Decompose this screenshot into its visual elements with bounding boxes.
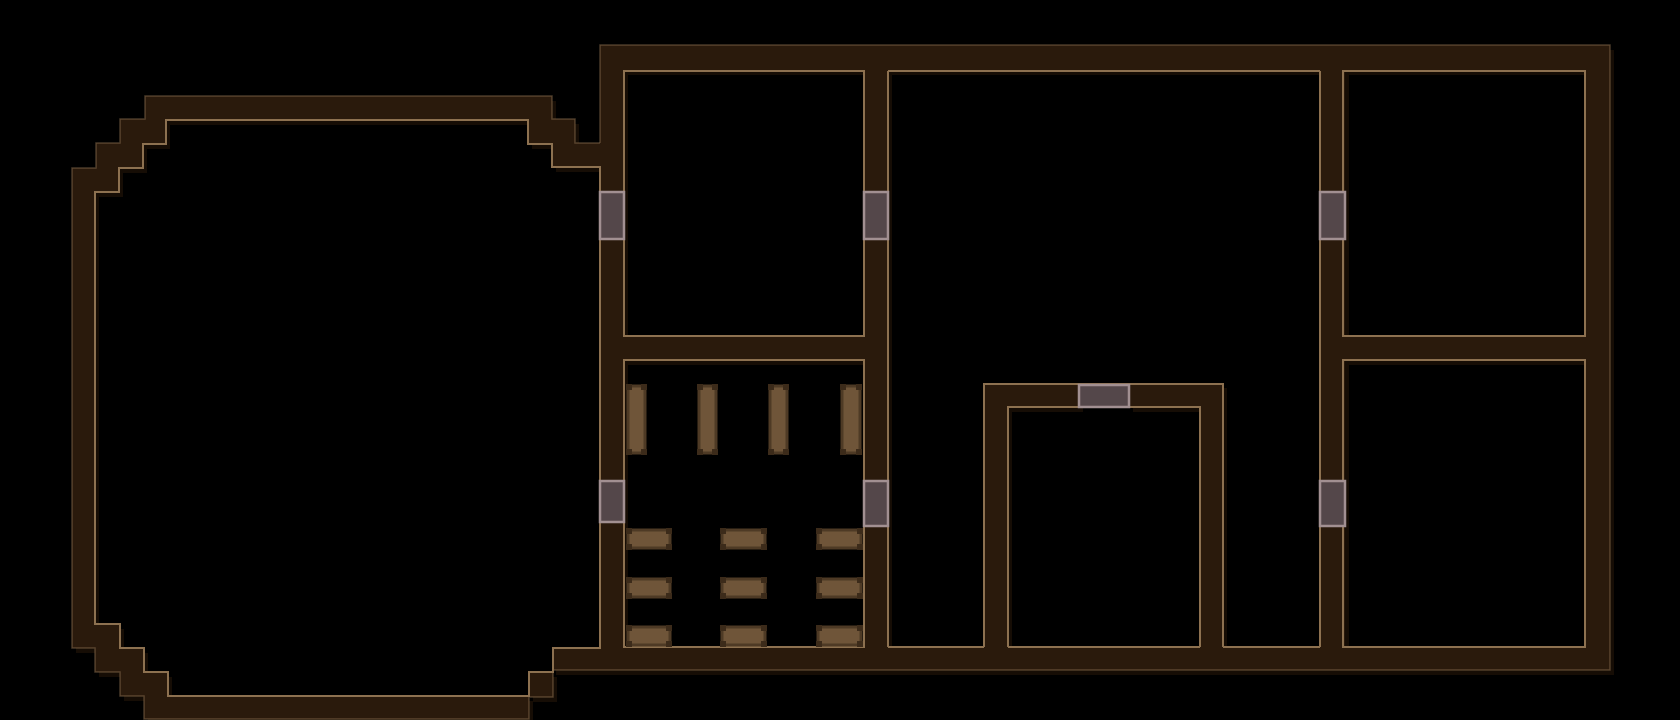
bench-vertical-3-cap-2 — [783, 384, 789, 390]
door-wall-a-south[interactable] — [864, 481, 888, 526]
bench-row2-col3[interactable] — [816, 577, 863, 599]
bench-row3-col3-seat[interactable] — [818, 627, 861, 645]
bench-vertical-3-cap-1 — [768, 384, 774, 390]
bench-vertical-2-cap-3 — [697, 449, 703, 455]
bench-vertical-2-cap-2 — [712, 384, 718, 390]
small-room-wall-north-right — [1129, 383, 1223, 407]
bench-row3-col1-cap-3 — [626, 641, 632, 647]
bench-row3-col3-cap-2 — [857, 625, 863, 631]
bench-row2-col2[interactable] — [720, 577, 767, 599]
bench-row2-col2-cap-2 — [761, 577, 767, 583]
bench-row2-col1[interactable] — [626, 577, 672, 599]
bench-vertical-3-cap-3 — [768, 449, 774, 455]
wall-vertical-a — [864, 70, 888, 648]
bench-row3-col1[interactable] — [626, 625, 672, 647]
bench-vertical-4-seat[interactable] — [842, 386, 860, 453]
bench-row1-col3[interactable] — [816, 528, 863, 550]
door-west-wall-north[interactable] — [600, 192, 624, 239]
bench-row1-col1[interactable] — [626, 528, 672, 550]
bench-row1-col2[interactable] — [720, 528, 767, 550]
bench-vertical-4-cap-2 — [856, 384, 862, 390]
bench-row1-col1-seat[interactable] — [628, 530, 670, 548]
bench-row3-col3-cap-4 — [857, 641, 863, 647]
bench-row1-col1-cap-3 — [626, 544, 632, 550]
small-room-wall-west — [984, 383, 1008, 648]
bench-row2-col1-cap-3 — [626, 593, 632, 599]
bench-vertical-3-seat[interactable] — [770, 386, 787, 453]
bench-vertical-1-seat[interactable] — [628, 386, 645, 453]
door-wall-b-north[interactable] — [1320, 192, 1345, 239]
bench-row2-col3-cap-1 — [816, 577, 822, 583]
bench-row1-col2-cap-2 — [761, 528, 767, 534]
bench-row3-col2-seat[interactable] — [722, 627, 765, 645]
bench-row2-col1-cap-4 — [666, 593, 672, 599]
bench-row1-col2-seat[interactable] — [722, 530, 765, 548]
wall-south — [552, 648, 1610, 670]
bench-vertical-2[interactable] — [697, 384, 718, 455]
bench-row3-col1-cap-1 — [626, 625, 632, 631]
wall-east — [1585, 45, 1610, 670]
bench-row2-col3-cap-4 — [857, 593, 863, 599]
bench-row1-col1-cap-1 — [626, 528, 632, 534]
wall-divider-east — [1343, 337, 1585, 360]
bench-vertical-4-cap-4 — [856, 449, 862, 455]
bench-row2-col2-seat[interactable] — [722, 579, 765, 597]
bench-row3-col3-cap-3 — [816, 641, 822, 647]
bench-vertical-4[interactable] — [840, 384, 862, 455]
bench-row3-col2-cap-1 — [720, 625, 726, 631]
bench-vertical-3-cap-4 — [783, 449, 789, 455]
bench-vertical-1-cap-1 — [626, 384, 632, 390]
bench-row2-col1-cap-1 — [626, 577, 632, 583]
bench-row1-col2-cap-3 — [720, 544, 726, 550]
bench-row2-col2-cap-1 — [720, 577, 726, 583]
bench-vertical-1-cap-2 — [641, 384, 647, 390]
bench-row2-col1-seat[interactable] — [628, 579, 670, 597]
bench-row2-col2-cap-4 — [761, 593, 767, 599]
bench-row1-col3-seat[interactable] — [818, 530, 861, 548]
bench-row2-col3-cap-3 — [816, 593, 822, 599]
bench-row1-col1-cap-2 — [666, 528, 672, 534]
bench-row2-col3-seat[interactable] — [818, 579, 861, 597]
bench-vertical-2-cap-4 — [712, 449, 718, 455]
bench-row3-col2-cap-3 — [720, 641, 726, 647]
bench-row3-col2-cap-2 — [761, 625, 767, 631]
door-wall-a-north[interactable] — [864, 192, 888, 239]
bench-row3-col2[interactable] — [720, 625, 767, 647]
bench-row1-col2-cap-4 — [761, 544, 767, 550]
bench-row3-col1-cap-2 — [666, 625, 672, 631]
bench-vertical-1-cap-4 — [641, 449, 647, 455]
door-west-wall-south[interactable] — [600, 481, 624, 522]
wall-north — [600, 45, 1610, 70]
bench-row3-col1-seat[interactable] — [628, 627, 670, 645]
bench-vertical-2-cap-1 — [697, 384, 703, 390]
door-wall-b-south[interactable] — [1320, 481, 1345, 526]
bench-row3-col3-cap-1 — [816, 625, 822, 631]
small-room-wall-east — [1200, 383, 1223, 648]
bench-row3-col2-cap-4 — [761, 641, 767, 647]
bench-vertical-4-cap-3 — [840, 449, 846, 455]
bench-row1-col3-cap-3 — [816, 544, 822, 550]
bench-vertical-3[interactable] — [768, 384, 789, 455]
floor-plan-stage — [0, 0, 1680, 720]
door-small-room-north[interactable] — [1079, 385, 1129, 407]
wall-vertical-b — [1320, 70, 1345, 648]
bench-row2-col1-cap-2 — [666, 577, 672, 583]
bench-row1-col1-cap-4 — [666, 544, 672, 550]
bench-vertical-1[interactable] — [626, 384, 647, 455]
wall-divider-west — [600, 337, 864, 360]
bench-vertical-2-seat[interactable] — [699, 386, 716, 453]
bench-row1-col2-cap-1 — [720, 528, 726, 534]
bench-row2-col2-cap-3 — [720, 593, 726, 599]
bench-vertical-1-cap-3 — [626, 449, 632, 455]
floor-plan-map — [0, 0, 1680, 720]
bench-row1-col3-cap-2 — [857, 528, 863, 534]
bench-row3-col3[interactable] — [816, 625, 863, 647]
bench-row2-col3-cap-2 — [857, 577, 863, 583]
small-room-wall-north-left — [984, 383, 1079, 407]
bench-row3-col1-cap-4 — [666, 641, 672, 647]
bench-row1-col3-cap-1 — [816, 528, 822, 534]
bench-row1-col3-cap-4 — [857, 544, 863, 550]
bench-vertical-4-cap-1 — [840, 384, 846, 390]
